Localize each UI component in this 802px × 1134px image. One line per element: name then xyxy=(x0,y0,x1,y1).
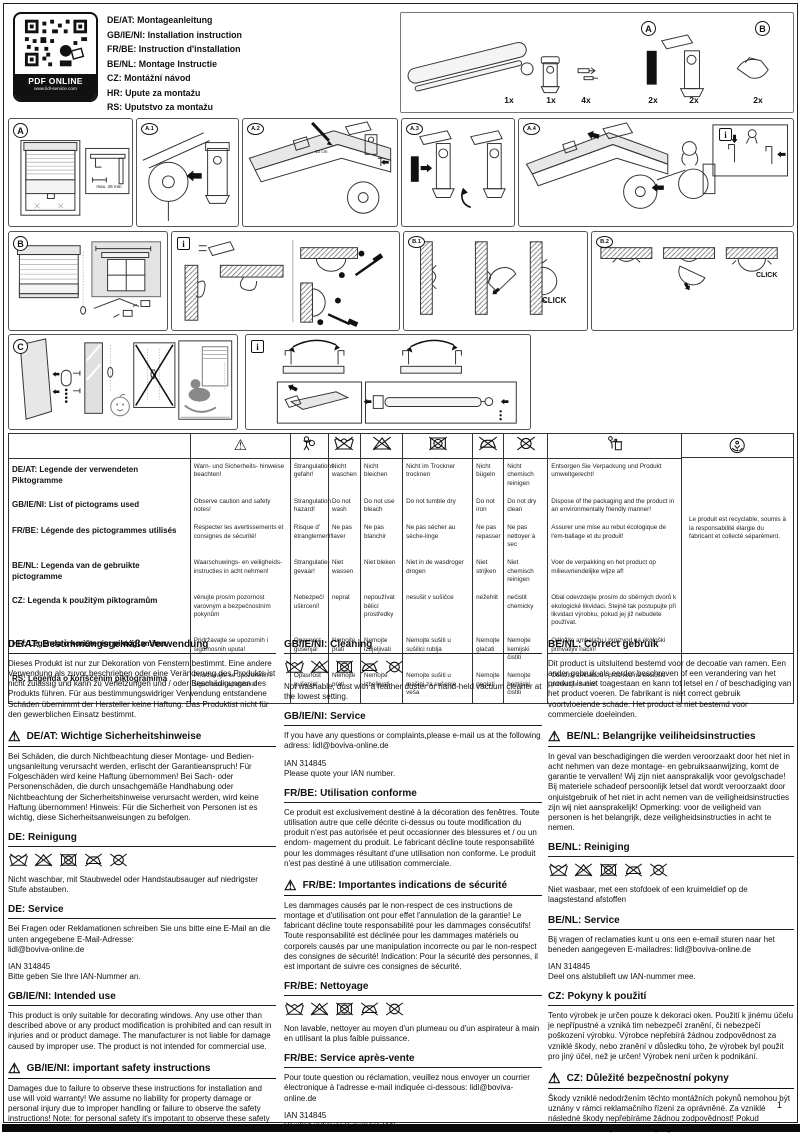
section-heading: GB/IE/NI: Cleaning xyxy=(284,639,542,654)
bottom-bar xyxy=(2,1124,800,1132)
tumble-dry-cell: Ne pas sécher au sèche-linge xyxy=(403,520,473,555)
do-not-iron-icon xyxy=(83,852,104,868)
panel-b2: B.2 CLICK xyxy=(591,231,794,331)
panel-b-badge: B xyxy=(13,236,28,251)
do-not-iron-icon xyxy=(359,659,380,675)
part-quantity: 2x xyxy=(641,95,665,105)
info-icon: i xyxy=(251,340,264,353)
do-not-wash-icon xyxy=(284,1001,305,1017)
legend-cell: CZ: Legenda k použitým piktogramům xyxy=(9,590,190,633)
disposal-cell: Voer de verpakking en het product op mil… xyxy=(548,555,681,590)
section-paragraph: Les dammages causés par le non-respect d… xyxy=(284,901,542,972)
section-heading: GB/IE/NI: Intended use xyxy=(8,991,276,1006)
tumble-dry-cell: Do not tumble dry xyxy=(403,494,473,521)
dry-clean-cell: Ne pas nettoyer à sec xyxy=(504,520,548,555)
do-not-bleach-icon xyxy=(361,434,403,459)
part-quantity: 1x xyxy=(497,95,521,105)
section-paragraph: Bei Schäden, die durch Nichtbeachtung di… xyxy=(8,752,276,823)
part-quantity: 1x xyxy=(539,95,563,105)
info-icon: i xyxy=(719,128,732,141)
section-warning-heading: ⚠FR/BE: Importantes indications de sécur… xyxy=(284,879,542,896)
bleach-cell: Do not use bleach xyxy=(361,494,403,521)
do-not-wash-icon xyxy=(284,659,305,675)
do-not-dry-clean-icon xyxy=(384,1001,405,1017)
strangulation-cell: Strangulation hazard! xyxy=(290,494,328,521)
wash-cell: Niet wassen xyxy=(328,555,360,590)
do-not-dry-clean-icon xyxy=(504,434,548,459)
panel-a4: A.4 i xyxy=(518,118,794,227)
do-not-tumble-dry-icon xyxy=(334,659,355,675)
panel-info-mounting: i xyxy=(171,231,400,331)
qr-code-block: PDF ONLINE www.lidl-service.com xyxy=(13,12,98,102)
dry-clean-cell: Do not dry clean xyxy=(504,494,548,521)
section-warning-heading: ⚠CZ: Důležité bezpečnostní pokyny xyxy=(548,1072,794,1089)
section-heading: BE/NL: Reiniging xyxy=(548,842,794,857)
dry-clean-cell: nečistit chemicky xyxy=(504,590,548,633)
disposal-cell: Entsorgen Sie Verpackung und Produkt umw… xyxy=(548,459,681,494)
iron-cell: nežehlit xyxy=(473,590,504,633)
care-icons-row xyxy=(284,1001,542,1017)
panel-b1: B.1 CLICK xyxy=(403,231,588,331)
section-heading: FR/BE: Utilisation conforme xyxy=(284,788,542,803)
info-icon: i xyxy=(177,237,190,250)
warn-cell: Warn- und Sicherheits- hinweise beachten… xyxy=(190,459,290,494)
tumble-dry-cell: nesušit v sušičce xyxy=(403,590,473,633)
recycle-icon xyxy=(682,434,793,458)
dry-clean-cell: Nicht chemisch reinigen xyxy=(504,459,548,494)
disposal-cell: Dispose of the packaging and the product… xyxy=(548,494,681,521)
panel-a3: A.3 xyxy=(401,118,515,227)
do-not-tumble-dry-icon xyxy=(403,434,473,459)
warn-cell: Observe caution and safety notes! xyxy=(190,494,290,521)
section-paragraph: Bij vragen of reclamaties kunt u ons een… xyxy=(548,935,794,955)
section-heading: FR/BE: Nettoyage xyxy=(284,981,542,996)
section-heading: DE/AT: Bestimmungsgemäße Verwendung xyxy=(8,639,276,654)
language-line: HR: Upute za montažu xyxy=(107,86,397,101)
warning-icon: ⚠ xyxy=(548,730,561,742)
do-not-bleach-icon xyxy=(309,1001,330,1017)
section-paragraph: Dieses Produkt ist nur zur Dekoration vo… xyxy=(8,659,276,720)
warning-icon: ⚠ xyxy=(190,434,290,459)
wash-cell: neprat xyxy=(328,590,360,633)
wash-cell: Ne pas laver xyxy=(328,520,360,555)
dry-clean-cell: Niet chemisch reinigen xyxy=(504,555,548,590)
section-warning-heading: ⚠DE/AT: Wichtige Sicherheitshinweise xyxy=(8,730,276,747)
section-heading: CZ: Pokyny k použití xyxy=(548,991,794,1006)
panel-a3-badge: A.3 xyxy=(406,123,423,135)
warn-cell: Waarschuwings- en veiligheids- instructi… xyxy=(190,555,290,590)
care-icons-row xyxy=(284,659,542,675)
pictogram-row: FR/BE: Légende des pictogrammes utilisés… xyxy=(9,520,681,555)
manual-page: PDF ONLINE www.lidl-service.com DE/AT: M… xyxy=(0,0,802,1134)
section-paragraph: Nicht waschbar, mit Staubwedel oder Hand… xyxy=(8,875,276,895)
warning-icon: ⚠ xyxy=(8,1062,21,1074)
section-paragraph: Pour toute question ou réclamation, veui… xyxy=(284,1073,542,1103)
language-line: GB/IE/NI: Installation instruction xyxy=(107,28,397,43)
warn-cell: věnujte prosím pozornost varovným a bezp… xyxy=(190,590,290,633)
pictogram-header-row: ⚠ xyxy=(9,434,681,459)
bleach-cell: Nicht bleichen xyxy=(361,459,403,494)
do-not-bleach-icon xyxy=(33,852,54,868)
qr-label-title: PDF ONLINE xyxy=(15,76,96,86)
qr-code-image xyxy=(23,17,89,69)
panel-a2-badge: A.2 xyxy=(247,123,264,135)
section-paragraph: Not washable, dust with a feather duster… xyxy=(284,682,542,702)
do-not-bleach-icon xyxy=(573,862,594,878)
warning-icon: ⚠ xyxy=(284,879,297,891)
do-not-dry-clean-icon xyxy=(108,852,129,868)
text-column-gb-fr: GB/IE/NI: Cleaning Not washable, dust wi… xyxy=(284,639,542,1134)
do-not-iron-icon xyxy=(359,1001,380,1017)
text-column-nl-cz: BE/NL: Correct gebruikDit product is uit… xyxy=(548,639,794,1134)
section-warning-heading: ⚠GB/IE/NI: important safety instructions xyxy=(8,1062,276,1079)
section-paragraph: Non lavable, nettoyer au moyen d'un plum… xyxy=(284,1024,542,1044)
wash-cell: Do not wash xyxy=(328,494,360,521)
panel-b1-badge: B.1 xyxy=(408,236,425,248)
section-paragraph: IAN 314845 Deel ons alstublieft uw IAN-n… xyxy=(548,962,794,982)
part-group-b-badge: B xyxy=(755,21,770,36)
section-paragraph: IAN 314845 Bitte geben Sie Ihre IAN-Numm… xyxy=(8,962,276,982)
qr-label-url: www.lidl-service.com xyxy=(15,86,96,92)
section-heading: BE/NL: Service xyxy=(548,915,794,930)
disposal-cell: Obal odevzdejte prosím do sběrných dvorů… xyxy=(548,590,681,633)
pictogram-row: GB/IE/NI: List of pictograms used Observ… xyxy=(9,494,681,521)
warning-icon: ⚠ xyxy=(8,730,21,742)
section-paragraph: Tento výrobek je určen pouze k dekoraci … xyxy=(548,1011,794,1062)
iron-cell: Niet strijken xyxy=(473,555,504,590)
legend-header-cell xyxy=(9,434,190,459)
tumble-dry-cell: Nicht im Trockner trocknen xyxy=(403,459,473,494)
part-quantity: 4x xyxy=(574,95,598,105)
section-heading: FR/BE: Service après-vente xyxy=(284,1053,542,1068)
part-quantity: 2x xyxy=(746,95,770,105)
strangulation-cell: Strangulatie- gevaar! xyxy=(290,555,328,590)
pictogram-row: BE/NL: Legenda van de gebruikte pictogra… xyxy=(9,555,681,590)
strangulation-cell: Risque d' étranglement! xyxy=(290,520,328,555)
click-label: CLICK xyxy=(542,296,566,305)
care-icons-row xyxy=(8,852,276,868)
section-heading: DE: Service xyxy=(8,904,276,919)
panel-a4-badge: A.4 xyxy=(523,123,540,135)
recycle-note: Le produit est recyclable, soumis à la r… xyxy=(682,458,793,542)
panel-b2-badge: B.2 xyxy=(596,236,613,248)
strangulation-icon xyxy=(290,434,328,459)
section-paragraph: Ce produit est exclusivement destiné à l… xyxy=(284,808,542,869)
disposal-icon xyxy=(548,434,681,459)
section-heading: GB/IE/NI: Service xyxy=(284,711,542,726)
legend-cell: BE/NL: Legenda van de gebruikte pictogra… xyxy=(9,555,190,590)
iron-cell: Nicht bügeln xyxy=(473,459,504,494)
do-not-iron-icon xyxy=(623,862,644,878)
section-paragraph: If you have any questions or complaints,… xyxy=(284,731,542,751)
bleach-cell: nepoužívat bělicí prostředky xyxy=(361,590,403,633)
section-paragraph: IAN 314845 Please quote your IAN number. xyxy=(284,759,542,779)
iron-cell: Do not iron xyxy=(473,494,504,521)
panel-c: C xyxy=(8,334,238,430)
panel-info-adjust: i xyxy=(245,334,531,430)
legend-cell: GB/IE/NI: List of pictograms used xyxy=(9,494,190,521)
panel-a2: A.2 10 cm xyxy=(242,118,398,227)
do-not-wash-icon xyxy=(8,852,29,868)
do-not-tumble-dry-icon xyxy=(598,862,619,878)
legend-cell: DE/AT: Legende der verwendeten Piktogram… xyxy=(9,459,190,494)
language-line: CZ: Montážní návod xyxy=(107,71,397,86)
do-not-iron-icon xyxy=(473,434,504,459)
section-paragraph: Dit product is uitsluitend bestemd voor … xyxy=(548,659,794,720)
strangulation-cell: Strangulations gefahr! xyxy=(290,459,328,494)
text-column-de-gb: DE/AT: Bestimmungsgemäße VerwendungDiese… xyxy=(8,639,276,1134)
warning-icon: ⚠ xyxy=(548,1072,561,1084)
language-line: DE/AT: Montageanleitung xyxy=(107,13,397,28)
panel-a-badge: A xyxy=(13,123,28,138)
do-not-tumble-dry-icon xyxy=(334,1001,355,1017)
iron-cell: Ne pas repasser xyxy=(473,520,504,555)
panel-a: A max. 25 mm xyxy=(8,118,133,227)
parts-overview-box: A B 1x 1x 4x 2x 2x 2x xyxy=(400,12,794,113)
click-label: CLICK xyxy=(756,272,777,279)
do-not-dry-clean-icon xyxy=(648,862,669,878)
panel-a1-badge: A.1 xyxy=(141,123,158,135)
section-paragraph: This product is only suitable for decora… xyxy=(8,1011,276,1052)
legend-cell: FR/BE: Légende des pictogrammes utilisés xyxy=(9,520,190,555)
do-not-dry-clean-icon xyxy=(384,659,405,675)
pictogram-row: DE/AT: Legende der verwendeten Piktogram… xyxy=(9,459,681,494)
do-not-tumble-dry-icon xyxy=(58,852,79,868)
do-not-bleach-icon xyxy=(309,659,330,675)
mark-distance-annotation: 10 cm xyxy=(315,149,328,154)
panel-b: B xyxy=(8,231,168,331)
wash-cell: Nicht waschen xyxy=(328,459,360,494)
care-icons-row xyxy=(548,862,794,878)
language-line: BE/NL: Montage Instructie xyxy=(107,57,397,72)
qr-label: PDF ONLINE www.lidl-service.com xyxy=(15,74,96,100)
panel-c-badge: C xyxy=(13,339,28,354)
part-group-a-badge: A xyxy=(641,21,656,36)
section-heading: BE/NL: Correct gebruik xyxy=(548,639,794,654)
section-heading: DE: Reinigung xyxy=(8,832,276,847)
language-title-list: DE/AT: Montageanleitung GB/IE/NI: Instal… xyxy=(107,13,397,115)
part-quantity: 2x xyxy=(682,95,706,105)
language-line: RS: Uputstvo za montažu xyxy=(107,100,397,115)
warn-cell: Respecter les avertissements et consigne… xyxy=(190,520,290,555)
language-line: FR/BE: Instruction d'installation xyxy=(107,42,397,57)
bleach-cell: Niet bleken xyxy=(361,555,403,590)
do-not-wash-icon xyxy=(548,862,569,878)
disposal-cell: Assurer une mise au rebut écologique de … xyxy=(548,520,681,555)
max-width-annotation: max. 25 mm xyxy=(87,184,131,189)
strangulation-cell: Nebezpečí uškrcení! xyxy=(290,590,328,633)
tumble-dry-cell: Niet in de wasdroger drogen xyxy=(403,555,473,590)
do-not-wash-icon xyxy=(328,434,360,459)
section-warning-heading: ⚠BE/NL: Belangrijke veiliheidsinstructie… xyxy=(548,730,794,747)
bleach-cell: Ne pas blanchir xyxy=(361,520,403,555)
section-paragraph: Niet wasbaar, met een stofdoek of een kr… xyxy=(548,885,794,905)
section-paragraph: Bei Fragen oder Reklamationen schreiben … xyxy=(8,924,276,954)
page-number: 1 xyxy=(777,1100,782,1110)
pictogram-row: CZ: Legenda k použitým piktogramům věnuj… xyxy=(9,590,681,633)
section-paragraph: In geval van beschadigingen die werden v… xyxy=(548,752,794,833)
panel-a1: A.1 xyxy=(136,118,239,227)
